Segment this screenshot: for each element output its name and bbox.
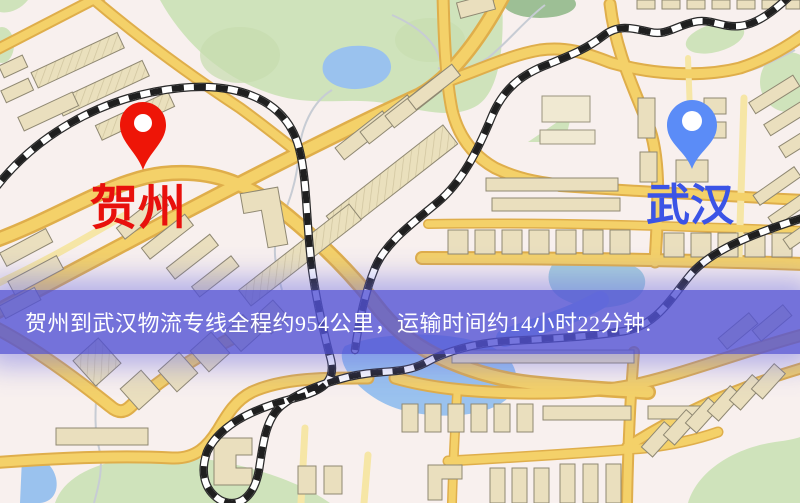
route-info-banner: 贺州到武汉物流专线全程约954公里，运输时间约14小时22分钟. — [0, 290, 800, 354]
route-info-text: 贺州到武汉物流专线全程约954公里，运输时间约14小时22分钟. — [0, 306, 652, 338]
origin-pin-hole — [134, 114, 152, 132]
map-canvas: 贺州 武汉 — [0, 0, 800, 503]
destination-pin-hole — [682, 111, 702, 131]
logistics-map-graphic: 贺州 武汉 贺州到武汉物流专线全程约954公里，运输时间约14小时22分钟. — [0, 0, 800, 503]
destination-label: 武汉 — [646, 181, 735, 230]
origin-label: 贺州 — [90, 182, 186, 235]
